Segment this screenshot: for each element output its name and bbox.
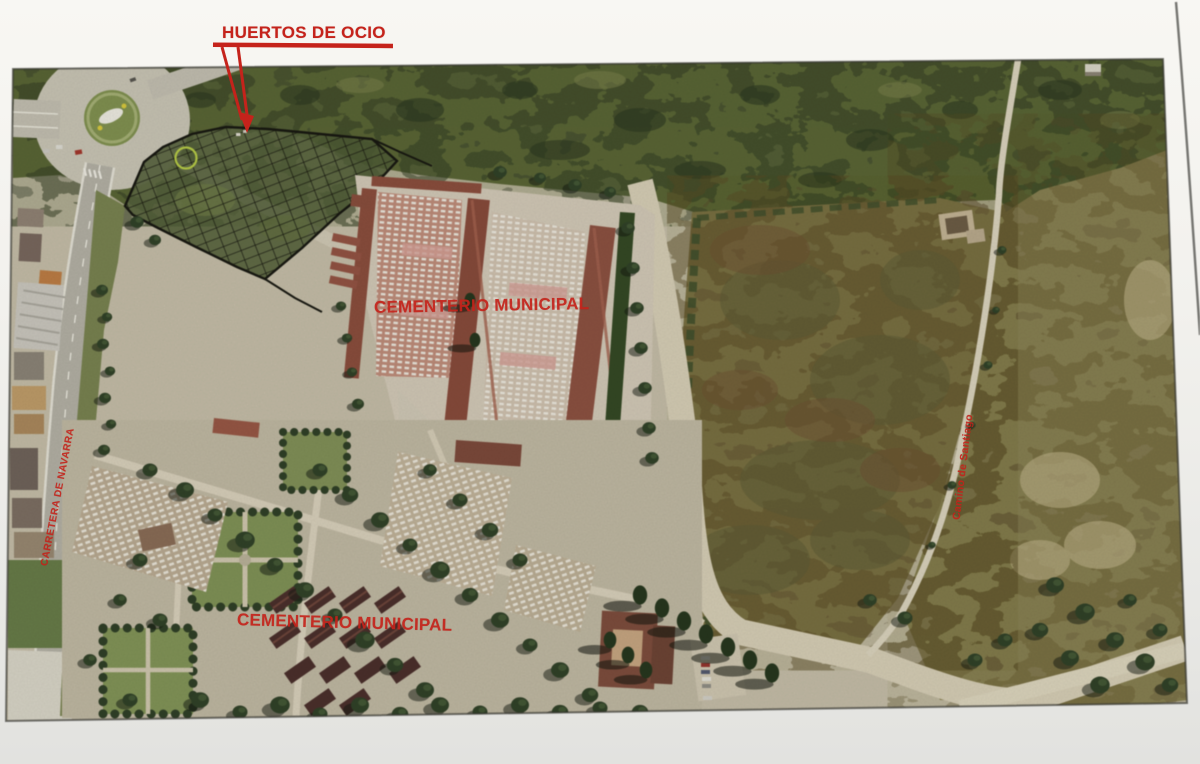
paper-edge [1176, 2, 1200, 335]
huertos-de-ocio-title: HUERTOS DE OCIO [222, 23, 386, 43]
aerial-photo [0, 0, 1200, 764]
upper-cemetery-label: CEMENTERIO MUNICIPAL [374, 294, 590, 318]
photographed-map-page: HUERTOS DE OCIO CEMENTERIO MUNICIPAL CEM… [0, 0, 1200, 764]
aerial-photo-content [0, 50, 1200, 730]
